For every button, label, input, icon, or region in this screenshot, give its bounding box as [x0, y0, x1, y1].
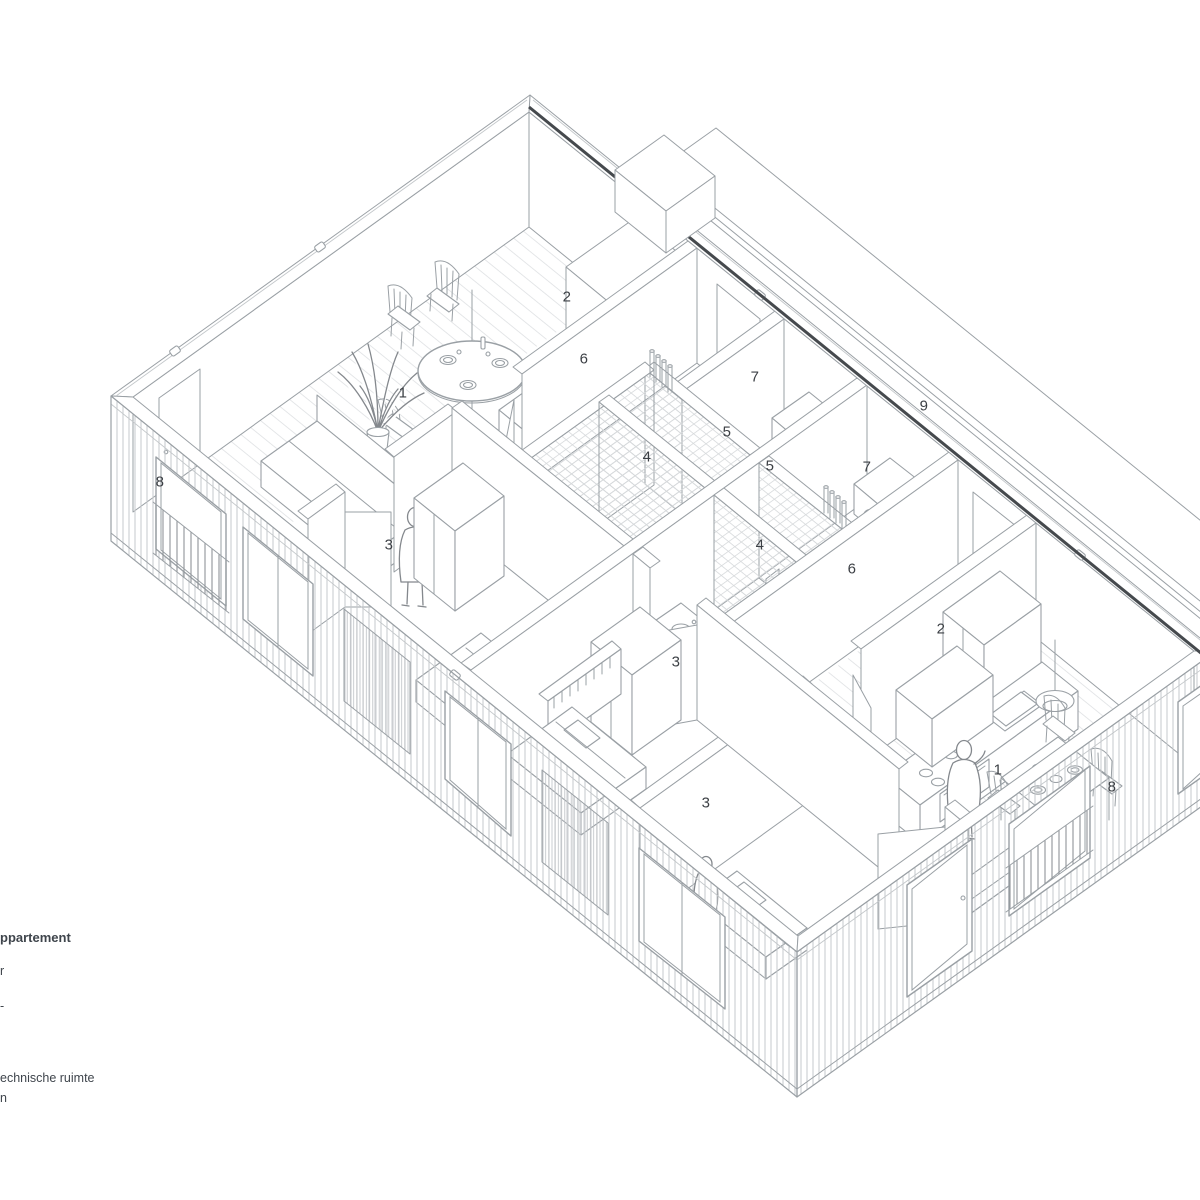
legend-item: echnische ruimte	[0, 1071, 95, 1085]
room-label-2: 2	[563, 289, 572, 306]
room-label-4: 4	[643, 449, 652, 466]
legend-item: -	[0, 999, 4, 1013]
room-label-4: 4	[756, 537, 765, 554]
legend-item: n	[0, 1091, 7, 1105]
legend-title: ppartement	[0, 930, 71, 945]
room-label-9: 9	[920, 398, 929, 415]
room-label-2: 2	[937, 621, 946, 638]
room-label-7: 7	[751, 369, 760, 386]
room-label-5: 5	[766, 458, 775, 475]
room-label-1: 1	[994, 762, 1003, 779]
room-label-6: 6	[580, 351, 589, 368]
room-label-6: 6	[848, 561, 857, 578]
room-label-3: 3	[672, 654, 681, 671]
room-label-7: 7	[863, 459, 872, 476]
legend-item: r	[0, 964, 4, 978]
room-label-8: 8	[156, 474, 165, 491]
drawing-sheet: 126754579462333188 ppartement r - echnis…	[0, 0, 1200, 1200]
room-label-8: 8	[1108, 779, 1117, 796]
plan-labels: 126754579462333188	[0, 0, 1200, 1200]
room-label-3: 3	[385, 537, 394, 554]
room-label-5: 5	[723, 424, 732, 441]
room-label-1: 1	[399, 385, 408, 402]
room-label-3: 3	[702, 795, 711, 812]
